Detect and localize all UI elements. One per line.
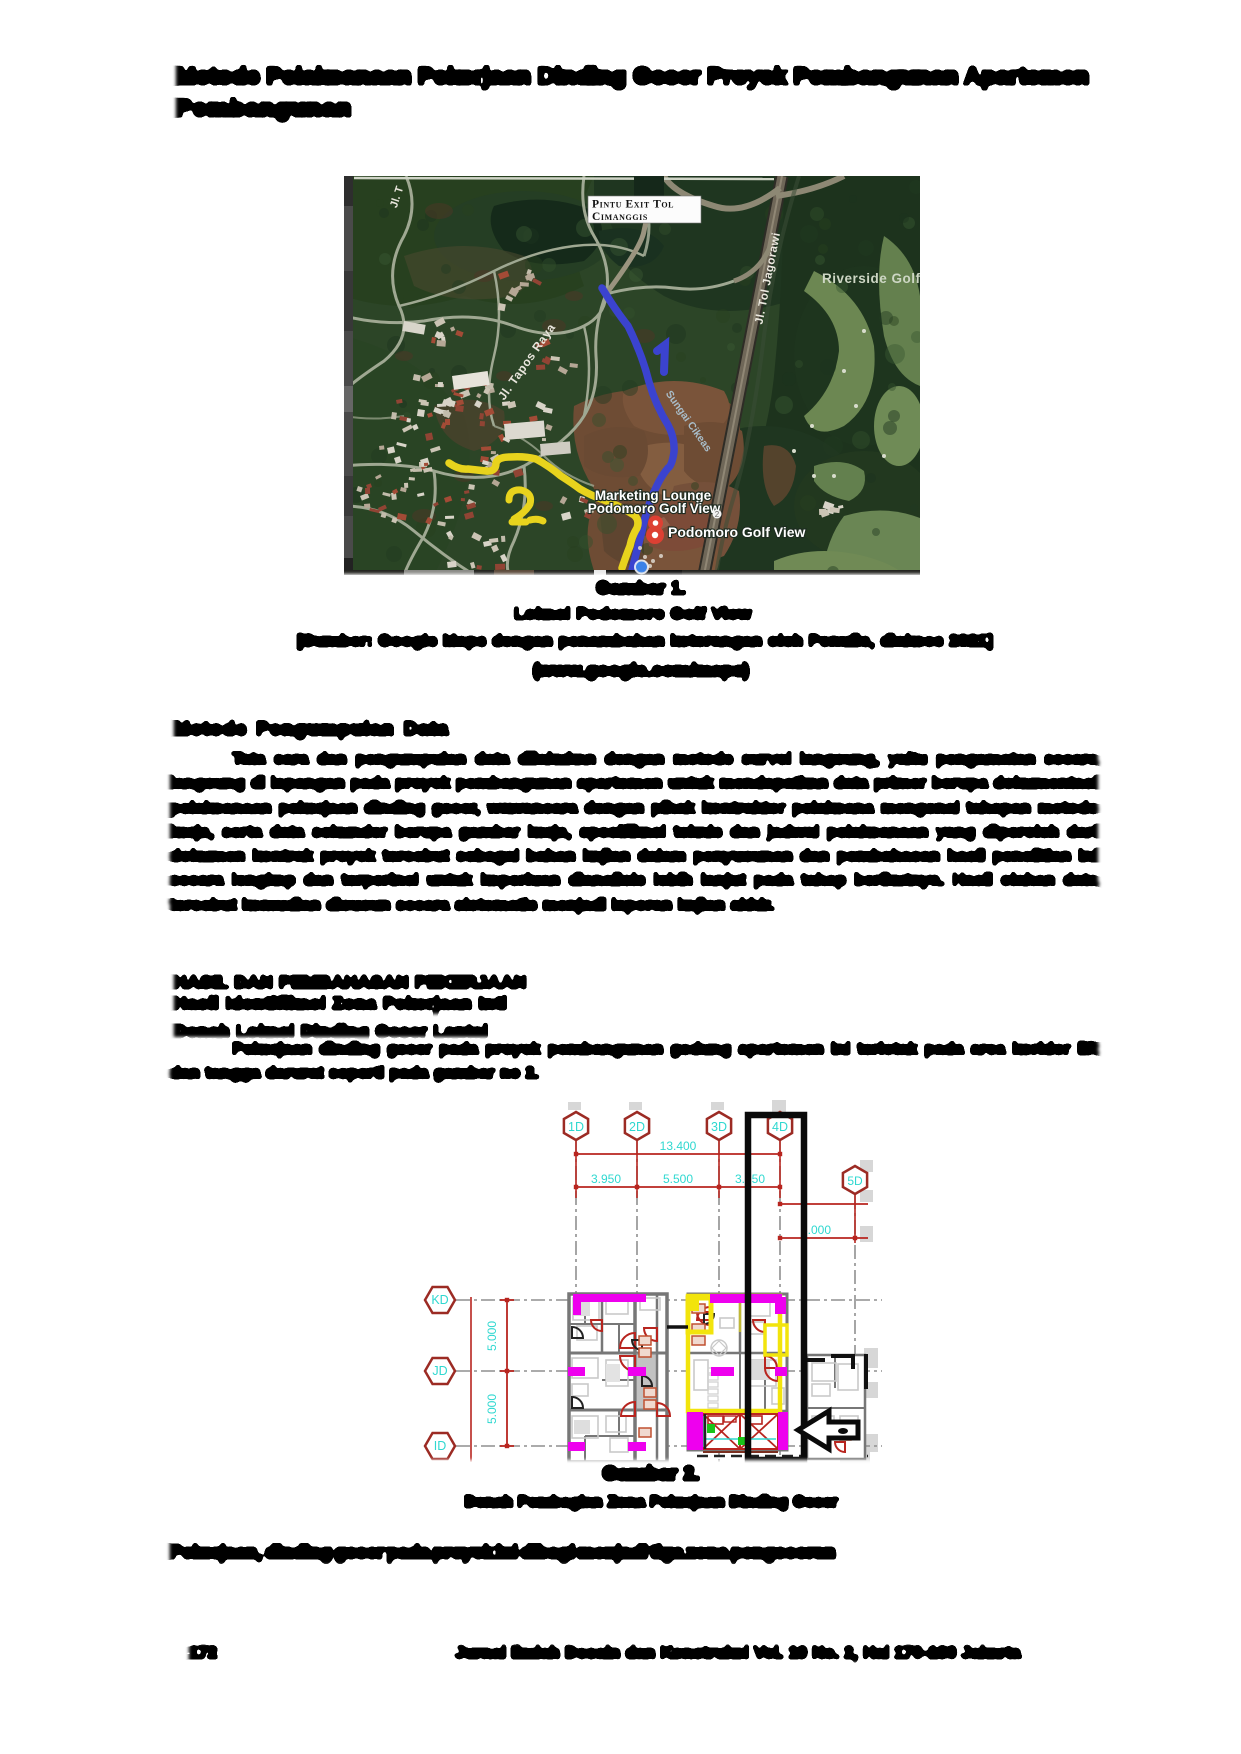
svg-text:ID: ID bbox=[434, 1439, 447, 1453]
svg-text:3D: 3D bbox=[711, 1120, 727, 1134]
svg-text:Podomoro Golf View: Podomoro Golf View bbox=[588, 501, 721, 516]
svg-text:2D: 2D bbox=[629, 1120, 645, 1134]
svg-text:2: 2 bbox=[715, 510, 720, 519]
svg-text:Cimanggis: Cimanggis bbox=[592, 211, 648, 223]
svg-text:Riverside Golf C: Riverside Golf C bbox=[822, 271, 920, 286]
svg-text:KD: KD bbox=[431, 1293, 448, 1307]
svg-text:4D: 4D bbox=[772, 1120, 788, 1134]
svg-text:5.000: 5.000 bbox=[485, 1394, 499, 1424]
svg-text:5.500: 5.500 bbox=[663, 1172, 693, 1186]
svg-text:1D: 1D bbox=[568, 1120, 584, 1134]
svg-text:5D: 5D bbox=[847, 1174, 863, 1188]
svg-text:Pintu Exit Tol: Pintu Exit Tol bbox=[592, 199, 674, 211]
svg-text:JD: JD bbox=[432, 1364, 447, 1378]
svg-text:5.000: 5.000 bbox=[485, 1321, 499, 1351]
svg-text:3.950: 3.950 bbox=[591, 1172, 621, 1186]
svg-text:13.400: 13.400 bbox=[660, 1139, 697, 1153]
svg-text:Podomoro Golf View: Podomoro Golf View bbox=[668, 524, 806, 540]
